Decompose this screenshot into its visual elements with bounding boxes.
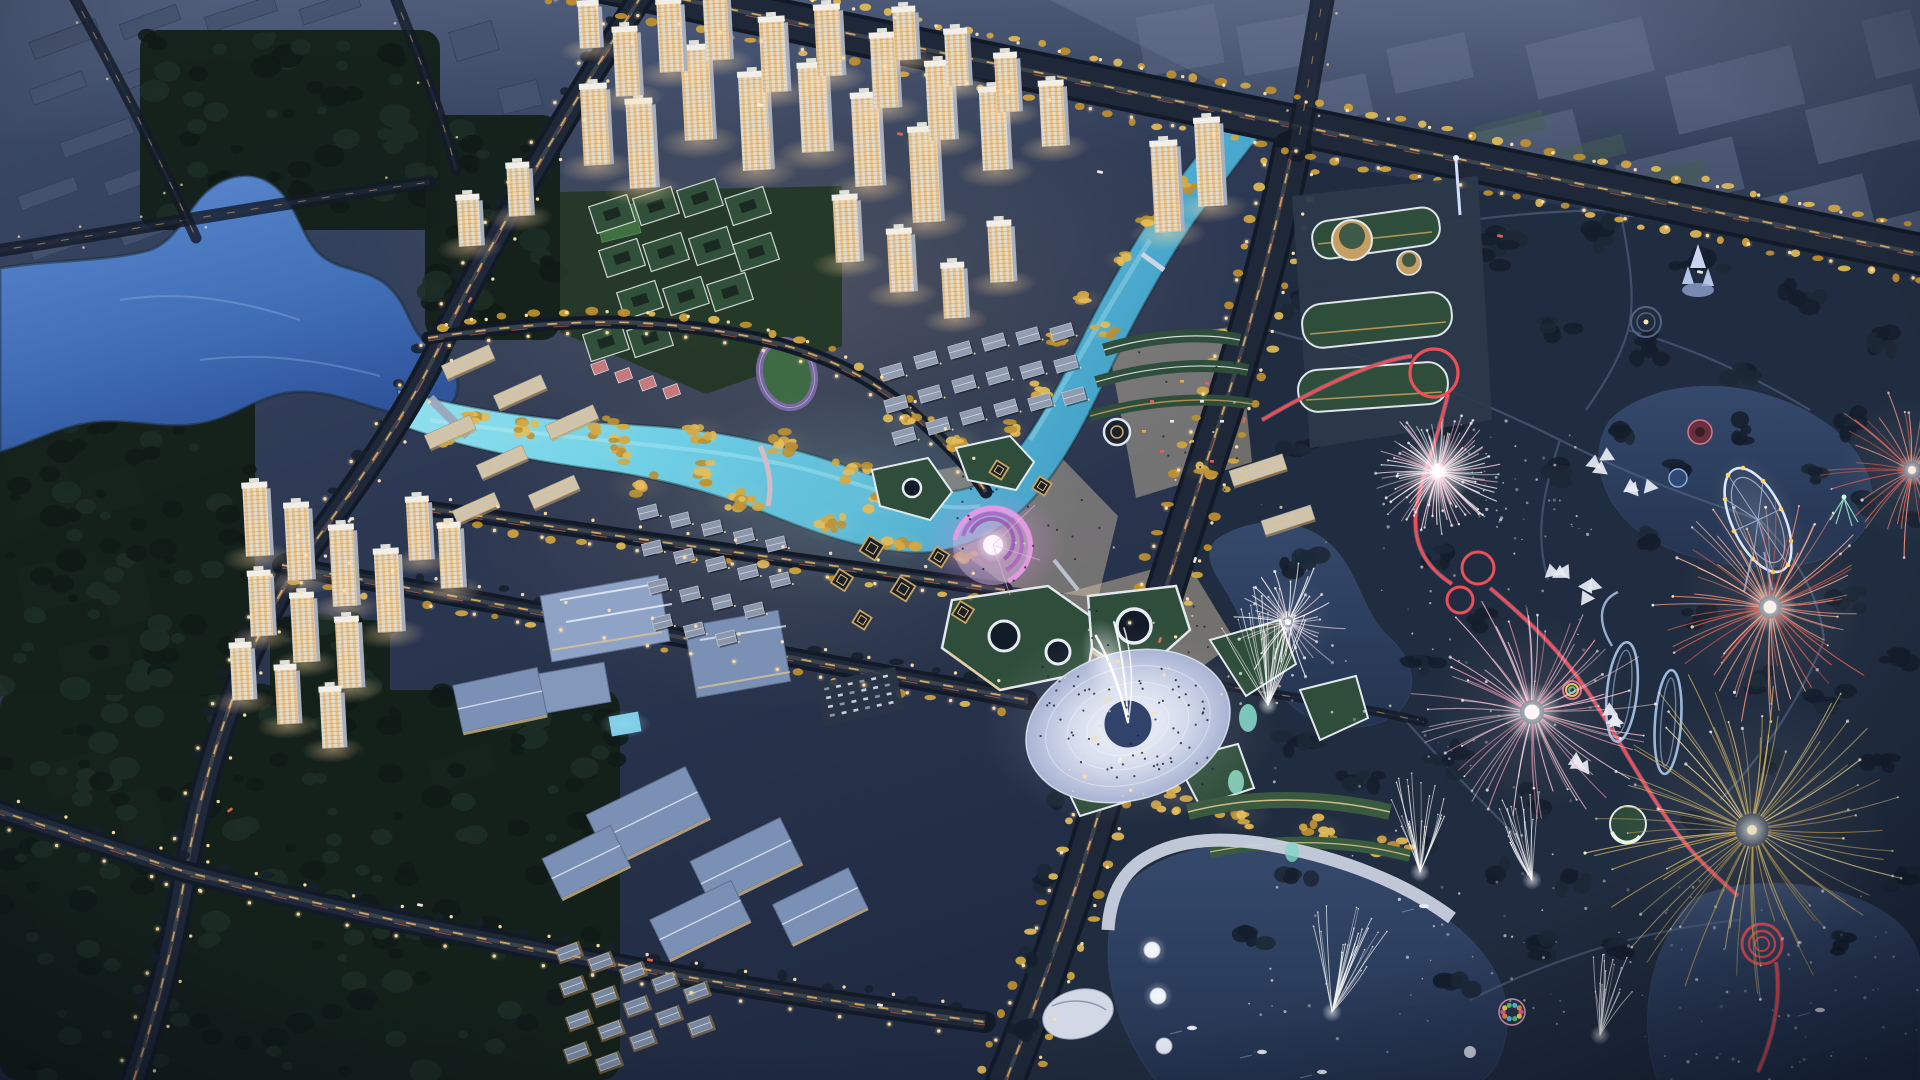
aerial-city-render xyxy=(0,0,1920,1080)
vignette xyxy=(0,0,1920,1080)
masterplan-render xyxy=(0,0,1920,1080)
